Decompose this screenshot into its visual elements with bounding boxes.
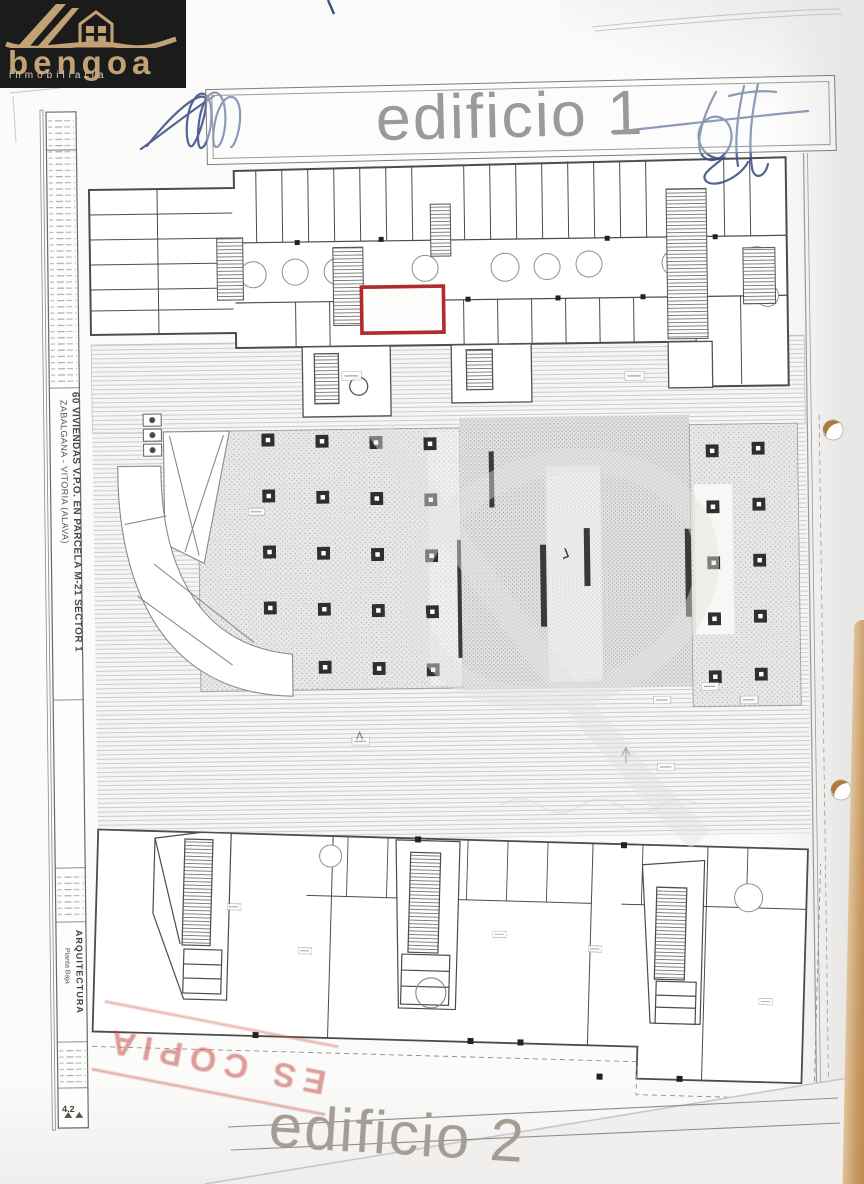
stairwell-b: [391, 840, 460, 1010]
plan-name-label: Planta Baja: [63, 948, 70, 984]
highlighted-room: [361, 286, 444, 333]
binder-hole: [823, 420, 843, 440]
project-title-line2: ZABALGANA - VITORIA (ALAVA): [58, 400, 70, 544]
agency-logo: bengoa inmobiliaria: [0, 0, 186, 88]
binder-hole: [831, 780, 851, 800]
discipline-label: ARQUITECTURA: [74, 930, 85, 1014]
revision-table: [48, 116, 77, 384]
top-frame-lines: [592, 9, 842, 31]
sheet-title: edificio 1: [249, 74, 770, 156]
scanned-plan-sheet: 60 VIVIENDAS V.P.O. EN PARCELA M-21 SECT…: [0, 0, 864, 1184]
logo-tagline-text: inmobiliaria: [9, 70, 108, 81]
pen-mark: [328, 0, 334, 14]
title-block-strip: 60 VIVIENDAS V.P.O. EN PARCELA M-21 SECT…: [40, 110, 89, 1130]
house-roof-icon: [0, 0, 186, 48]
meter-boxes: [143, 414, 162, 456]
lower-paving-hatch: [96, 691, 811, 843]
